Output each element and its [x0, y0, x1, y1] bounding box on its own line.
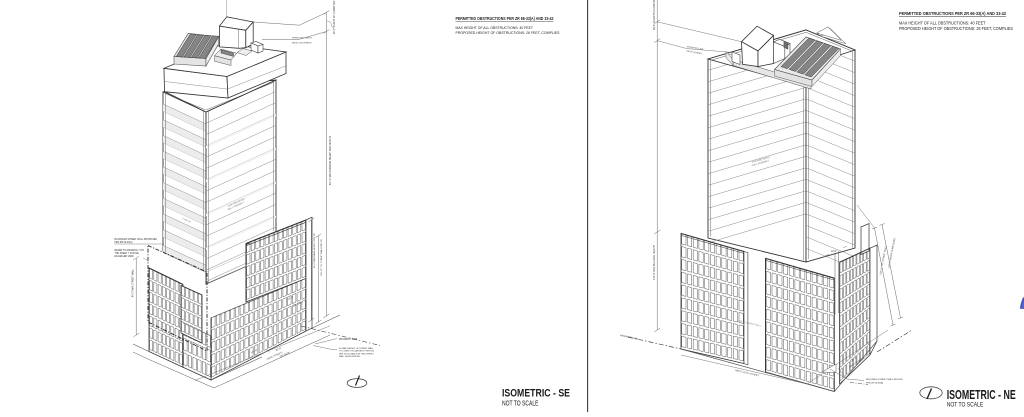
- svg-text:THE SHEET 7 FOR RE-: THE SHEET 7 FOR RE-: [115, 253, 140, 255]
- svg-text:PERMITTED OBSTRUCTIONS PER ZR: PERMITTED OBSTRUCTIONS PER ZR 66-33(A) A…: [456, 16, 555, 21]
- svg-text:WALL REGULATIONS: WALL REGULATIONS: [339, 355, 360, 358]
- svg-text:PER ZR 66-33(A) FOR THE STREET: PER ZR 66-33(A) FOR THE STREET: [339, 352, 374, 355]
- svg-text:ENLARGED VIEW: ENLARGED VIEW: [115, 255, 135, 258]
- svg-text:26'-0″ PERMITTED OBSTRUCTION: 26'-0″ PERMITTED OBSTRUCTION: [653, 0, 656, 30]
- svg-text:REQUIRED STREET WALL RECESS: REQUIRED STREET WALL RECESS: [866, 378, 903, 381]
- svg-text:REFER TO DRAWING 7 ON: REFER TO DRAWING 7 ON: [115, 249, 145, 252]
- svg-text:MECH. EQUIPMENT: MECH. EQUIPMENT: [292, 42, 312, 44]
- svg-text:410'-0″ MAX BUILDING HEIGHT: 410'-0″ MAX BUILDING HEIGHT: [653, 245, 656, 280]
- svg-text:PERMITTED OBSTR.: PERMITTED OBSTR.: [292, 37, 313, 39]
- svg-text:PER ZR 66-23(A): PER ZR 66-23(A): [115, 241, 133, 244]
- svg-text:410'-0″ MAX BUILDING HEIGHT PE: 410'-0″ MAX BUILDING HEIGHT PER ZR 66-33: [329, 135, 332, 185]
- svg-text:40' MAX HEIGHT OF STREET WALL: 40' MAX HEIGHT OF STREET WALL: [339, 347, 374, 350]
- svg-text:ISOMETRIC - SE: ISOMETRIC - SE: [502, 388, 570, 400]
- svg-text:40'-0″ MAX BASE HEIGHT PER ZR: 40'-0″ MAX BASE HEIGHT PER ZR: [313, 233, 316, 268]
- svg-text:26'-0″ HEIGHT OF PERMITTED OBS: 26'-0″ HEIGHT OF PERMITTED OBSTRUCTIONS: [333, 0, 336, 34]
- svg-text:PERMITTED OBSTRUCTIONS PER ZR: PERMITTED OBSTRUCTIONS PER ZR 66-33(A) A…: [899, 11, 1006, 17]
- svg-text:NOT TO SCALE: NOT TO SCALE: [947, 401, 984, 408]
- svg-text:PROPERTY LINE: PROPERTY LINE: [339, 339, 358, 341]
- svg-text:BULKHEAD STREET WALL PROPOSED: BULKHEAD STREET WALL PROPOSED: [115, 238, 158, 241]
- svg-text:PER ZR 66-33(A): PER ZR 66-33(A): [866, 381, 883, 384]
- svg-text:ISOMETRIC - NE: ISOMETRIC - NE: [947, 388, 1016, 402]
- svg-text:PROPOSED HEIGHT OF OBSTRUCTION: PROPOSED HEIGHT OF OBSTRUCTIONS: 26 FEET…: [456, 30, 560, 35]
- svg-text:TO COMPLY IN LARGEST PORTION: TO COMPLY IN LARGEST PORTION: [339, 350, 374, 353]
- svg-text:MAX HEIGHT OF ALL OBSTRUCTIONS: MAX HEIGHT OF ALL OBSTRUCTIONS: 40 FEET: [899, 20, 986, 25]
- svg-text:PROPOSED HEIGHT OF OBSTRUCTION: PROPOSED HEIGHT OF OBSTRUCTIONS: 26 FEET…: [899, 26, 1013, 31]
- svg-text:10'-0″: 10'-0″: [831, 251, 837, 253]
- svg-text:40'-0″ MAX STREET WALL: 40'-0″ MAX STREET WALL: [132, 268, 135, 297]
- svg-text:NOT TO SCALE: NOT TO SCALE: [502, 401, 539, 408]
- svg-text:102'-11″ T.O. STREET WALL PER: 102'-11″ T.O. STREET WALL PER ZR: [320, 239, 323, 276]
